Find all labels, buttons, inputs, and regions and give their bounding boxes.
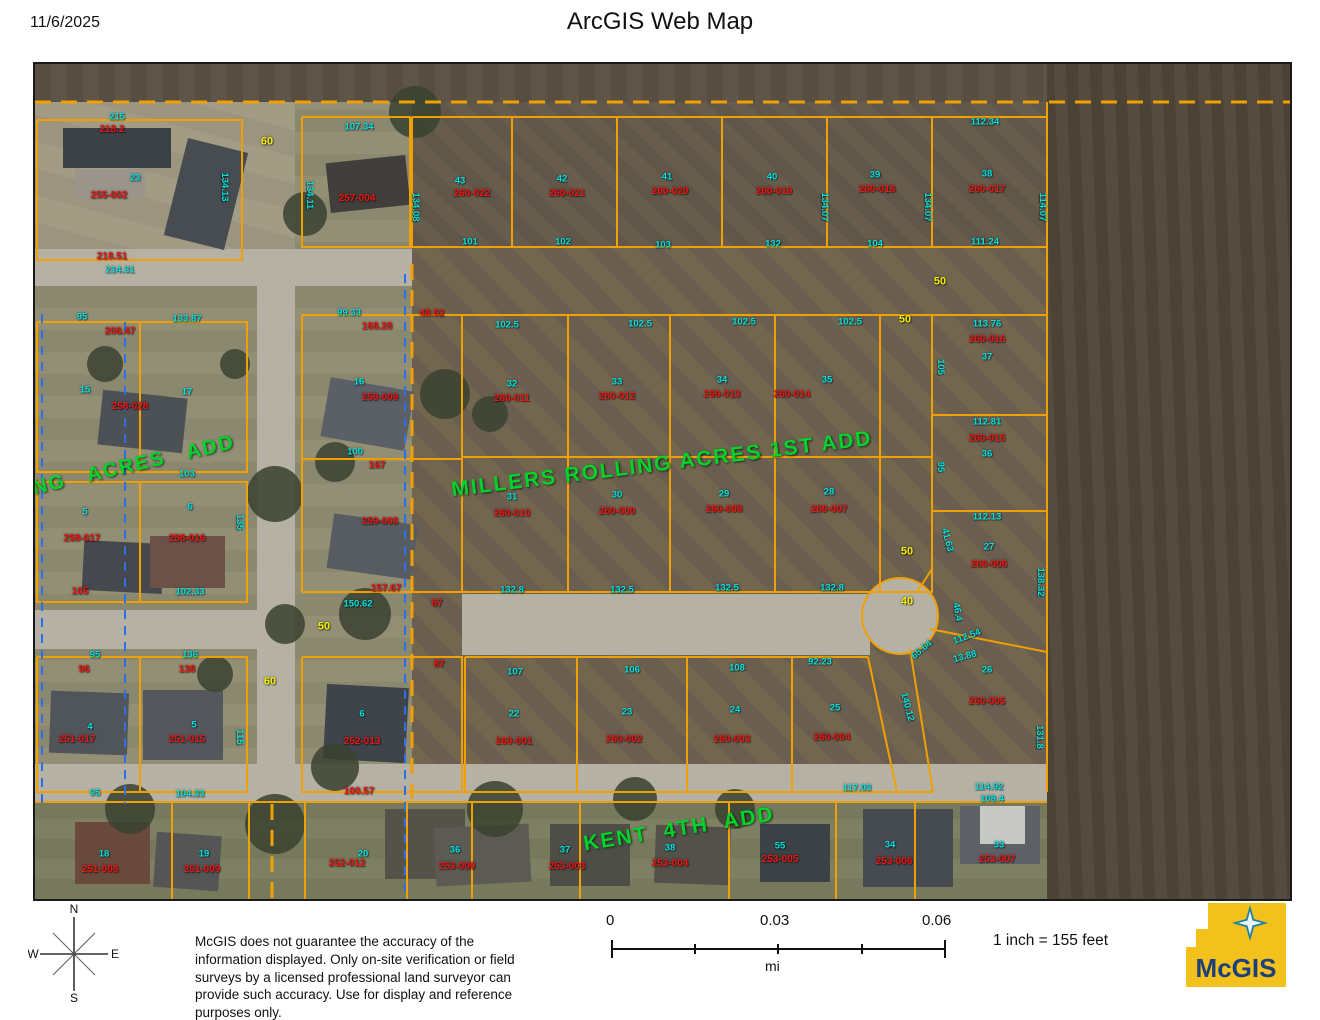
parcel-id-label: 260-020 — [652, 187, 689, 197]
parcel-id-label: 260-014 — [774, 390, 811, 400]
road-width-label: 50 — [899, 315, 911, 326]
dimension-label: 41 — [662, 172, 673, 182]
parcel-id-label: 260-002 — [606, 735, 643, 745]
dimension-label: 133.87 — [172, 314, 201, 324]
dimension-label: 103 — [179, 469, 195, 479]
parcel-id-label: 260-009 — [599, 507, 636, 517]
page-title: ArcGIS Web Map — [0, 8, 1320, 36]
compass-s: S — [70, 991, 78, 1003]
dimension-label: 150.62 — [343, 599, 372, 609]
dimension-label: 117.03 — [843, 783, 872, 793]
road-width-label: 50 — [318, 622, 330, 633]
parcel-id-label: 251-015 — [169, 735, 206, 745]
dimension-label: 104 — [867, 239, 883, 249]
dimension-label: 112.13 — [973, 512, 1002, 522]
parcel-id-label: 253-006 — [876, 857, 913, 867]
compass-w: W — [28, 947, 39, 961]
dimension-label: 32 — [507, 379, 518, 389]
parcel-id-label: 260-003 — [714, 735, 751, 745]
dimension-label: 28 — [824, 487, 835, 497]
dimension-label: 100 — [347, 447, 363, 457]
dimension-label: 107.34 — [344, 122, 373, 132]
dimension-label: 38 — [665, 843, 676, 853]
parcel-id-label: 260-021 — [549, 189, 586, 199]
dimension-label: 6 — [359, 709, 364, 719]
scale-label-max: 0.06 — [922, 912, 951, 929]
dimension-label: 29 — [719, 489, 730, 499]
dimension-label: 134.11 — [304, 181, 314, 210]
dimension-label: 102 — [555, 237, 571, 247]
dimension-label: 5 — [82, 507, 87, 517]
dimension-label-red: 48.02 — [419, 309, 444, 319]
dimension-label: 112.34 — [971, 117, 1000, 127]
dimension-label: 102.5 — [838, 317, 862, 327]
parcel-id-label: 251-009 — [184, 865, 221, 875]
dimension-label: 132.5 — [715, 583, 739, 593]
dimension-label: 25 — [830, 703, 841, 713]
parcel-id-label: 253-005 — [762, 855, 799, 865]
dimension-label: 24 — [730, 705, 741, 715]
dimension-label: 92.23 — [808, 657, 832, 667]
dimension-label: 16 — [354, 377, 365, 387]
dimension-label: 46.4 — [951, 602, 964, 622]
parcel-id-label: 253-009 — [439, 862, 476, 872]
dimension-label: 101 — [462, 237, 478, 247]
dimension-label: 20 — [358, 849, 369, 859]
parcel-id-label: 260-008 — [706, 505, 743, 515]
dimension-label: 4 — [87, 722, 92, 732]
dimension-label: 215 — [109, 112, 125, 122]
mcgis-logo: McGIS — [1178, 901, 1292, 989]
parcel-id-label: 253-007 — [979, 855, 1016, 865]
dimension-label: 115 — [234, 729, 244, 744]
parcel-id-label: 260-015 — [969, 434, 1006, 444]
dimension-label: 134.13 — [219, 172, 229, 201]
dimension-label: 34 — [717, 375, 728, 385]
parcel-id-label: 260-019 — [756, 187, 793, 197]
dimension-label: 102.5 — [732, 317, 756, 327]
scale-label-mid: 0.03 — [760, 912, 789, 929]
parcel-id-label: 252-012 — [329, 859, 366, 869]
dimension-label: 33 — [994, 840, 1005, 850]
road-width-label: 60 — [264, 677, 276, 688]
dimension-label: 106 — [624, 665, 640, 675]
dimension-label: 134.07 — [819, 192, 829, 221]
dimension-label: 30 — [612, 490, 623, 500]
dimension-label: 103 — [655, 240, 671, 250]
dimension-label-red: 138 — [179, 665, 196, 675]
parcel-id-label: 251-017 — [59, 735, 96, 745]
parcel-id-label: 260-017 — [969, 185, 1006, 195]
dimension-label: 95 — [77, 312, 88, 322]
dimension-label: 95 — [90, 650, 101, 660]
dimension-label: 36 — [982, 449, 993, 459]
dimension-label: 132.5 — [610, 585, 634, 595]
parcel-id-label: 260-007 — [811, 505, 848, 515]
dimension-label: 132.8 — [820, 583, 844, 593]
dimension-label-red: 105 — [72, 587, 89, 597]
dimension-label-red: 87 — [433, 660, 444, 670]
dimension-label: 23 — [130, 173, 141, 183]
dimension-label: 112.81 — [973, 417, 1002, 427]
dimension-label: 27 — [984, 542, 995, 552]
dimension-label: 114.92 — [975, 782, 1004, 792]
dimension-label: 111.24 — [971, 237, 999, 247]
dimension-label: 134.07 — [922, 192, 932, 221]
dimension-label: 5 — [191, 720, 196, 730]
road-width-label: 50 — [934, 277, 946, 288]
scale-unit: mi — [765, 958, 780, 974]
compass-rose: N E S W — [28, 903, 120, 1003]
dimension-label-red: 87 — [431, 599, 442, 609]
parcel-id-label: 260-013 — [704, 390, 741, 400]
parcel-id-label: 260-005 — [969, 697, 1006, 707]
dimension-label: 214.31 — [105, 265, 134, 275]
parcel-id-label: 260-001 — [496, 737, 533, 747]
parcel-id-label: 260-012 — [599, 392, 636, 402]
dimension-label: 33 — [612, 377, 623, 387]
dimension-label: 132.8 — [500, 585, 524, 595]
dimension-label-red: 157.67 — [371, 584, 402, 594]
parcel-id-label: 260-022 — [454, 189, 491, 199]
dimension-label: 19 — [199, 849, 210, 859]
dimension-label: 39 — [870, 170, 881, 180]
parcel-id-label: 260-011 — [494, 394, 530, 404]
dimension-label: 36 — [450, 845, 461, 855]
disclaimer-text: McGIS does not guarantee the accuracy of… — [195, 933, 530, 1020]
dimension-label: 136 — [182, 650, 198, 660]
dimension-label: 42 — [557, 174, 568, 184]
logo-text: McGIS — [1196, 953, 1277, 983]
scale-label-0: 0 — [606, 912, 614, 929]
dimension-label: 22 — [509, 709, 520, 719]
dimension-label-red: 218.2 — [99, 125, 124, 135]
parcel-id-label: 260-016 — [969, 335, 1006, 345]
dimension-label: 108.4 — [980, 794, 1004, 804]
dimension-label: 95 — [935, 462, 945, 473]
parcel-id-label: 259-009 — [362, 393, 399, 403]
dimension-label: 34 — [885, 840, 896, 850]
road-width-label: 40 — [901, 597, 913, 608]
dimension-label: 105 — [935, 359, 945, 375]
dimension-label: 99.33 — [337, 308, 361, 318]
dimension-label: 135 — [234, 514, 244, 530]
dimension-label: 102.5 — [628, 319, 652, 329]
dimension-label: 43 — [455, 176, 466, 186]
parcel-id-label: 253-004 — [652, 859, 689, 869]
dimension-label: 131.8 — [1034, 725, 1044, 749]
dimension-label-red: 168.28 — [362, 322, 393, 332]
road-width-label: 50 — [901, 547, 913, 558]
dimension-label: 23 — [622, 707, 633, 717]
dimension-label: 113.76 — [973, 319, 1002, 329]
parcel-id-label: 260-004 — [814, 733, 851, 743]
dimension-label: 95 — [90, 788, 101, 798]
road-width-label: 60 — [261, 137, 273, 148]
dimension-label: 134.08 — [410, 192, 420, 221]
dimension-label: 17 — [182, 387, 193, 397]
dimension-label: 104.33 — [175, 789, 204, 799]
dimension-label: 26 — [982, 665, 993, 675]
dimension-label: 102.33 — [175, 587, 204, 597]
dimension-label-red: 167 — [369, 461, 386, 471]
parcel-id-label: 259-008 — [362, 517, 399, 527]
parcel-id-label: 260-006 — [971, 560, 1008, 570]
parcel-id-label: 258-028 — [112, 402, 149, 412]
dimension-label: 107 — [507, 667, 523, 677]
parcel-id-label: 258-017 — [64, 534, 101, 544]
parcel-id-label: 255-002 — [91, 191, 128, 201]
dimension-label: 55 — [775, 841, 786, 851]
dimension-label: 35 — [822, 375, 833, 385]
dimension-label-red: 208.47 — [105, 327, 136, 337]
map-canvas[interactable]: 255-002257-004260-022260-021260-020260-0… — [33, 62, 1292, 901]
parcel-id-label: 260-018 — [859, 185, 896, 195]
parcel-id-label: 257-004 — [339, 194, 376, 204]
dimension-label-red: 218.51 — [97, 252, 128, 262]
dimension-label: 15 — [80, 385, 91, 395]
dimension-label: 37 — [982, 352, 993, 362]
dimension-label: 38 — [982, 169, 993, 179]
parcel-id-label: 251-008 — [82, 865, 119, 875]
dimension-label: 132 — [765, 239, 781, 249]
parcel-id-label: 253-003 — [549, 862, 586, 872]
dimension-label: 102.5 — [495, 320, 519, 330]
compass-n: N — [70, 903, 79, 916]
dimension-label: 6 — [187, 502, 192, 512]
parcel-id-label: 252-013 — [344, 737, 381, 747]
parcel-id-label: 260-010 — [494, 509, 531, 519]
dimension-label-red: 100.57 — [344, 787, 375, 797]
dimension-label: 40 — [767, 172, 778, 182]
dimension-label: 108 — [729, 663, 745, 673]
scale-bar: 0 0.03 0.06 mi — [600, 912, 960, 982]
scale-ratio-text: 1 inch = 155 feet — [993, 932, 1108, 950]
parcel-id-label: 258-016 — [169, 534, 206, 544]
dimension-label: 18 — [99, 849, 110, 859]
dimension-label: 138.32 — [1035, 567, 1045, 596]
compass-e: E — [111, 947, 119, 961]
dimension-label: 114.07 — [1037, 193, 1047, 222]
dimension-label-red: 96 — [78, 665, 89, 675]
dimension-label: 37 — [560, 845, 571, 855]
